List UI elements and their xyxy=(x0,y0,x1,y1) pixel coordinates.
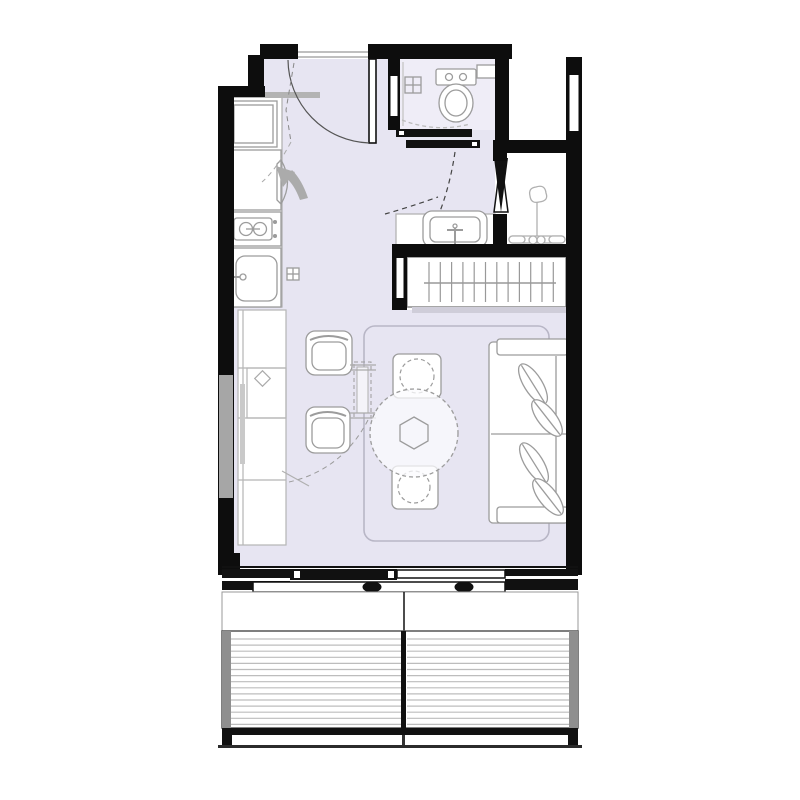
door-panel-right xyxy=(397,570,505,578)
bathroom-east-wall xyxy=(495,59,509,153)
balcony xyxy=(218,592,582,748)
utility-north-wall xyxy=(493,140,578,153)
round-table xyxy=(370,389,458,477)
door-handle-icon xyxy=(363,582,382,593)
headrest-top xyxy=(497,339,568,355)
door-panel-left xyxy=(290,569,397,580)
cabinet xyxy=(229,150,288,210)
cooktop xyxy=(229,212,281,246)
balcony-floor xyxy=(222,592,578,631)
wardrobe-shadow xyxy=(412,307,570,313)
railing xyxy=(222,728,578,735)
bench xyxy=(240,384,245,464)
bifold-door xyxy=(494,158,508,212)
west-window xyxy=(219,375,233,498)
toilet xyxy=(436,69,476,122)
north-wall-left xyxy=(260,44,298,59)
mid-wall xyxy=(392,244,578,257)
stool-top xyxy=(306,331,352,375)
ground-line xyxy=(218,745,582,748)
door-handle-icon xyxy=(455,582,474,593)
bed-sofa xyxy=(489,339,569,523)
west-wall xyxy=(218,86,234,575)
floor-drain-icon xyxy=(287,268,299,280)
balcony-divider xyxy=(401,631,406,728)
balcony-post-right xyxy=(569,631,578,728)
wardrobe xyxy=(407,257,570,313)
door-leaf xyxy=(369,59,376,143)
wall-niche xyxy=(477,65,497,78)
balcony-post-left xyxy=(222,631,231,728)
floor-plan-canvas xyxy=(0,0,800,800)
north-wall-right xyxy=(368,44,512,59)
sliding-glass-doors xyxy=(222,566,578,593)
east-wall xyxy=(566,153,582,575)
vanity xyxy=(396,211,495,247)
floor-plan-drawing xyxy=(0,0,800,800)
fridge xyxy=(229,101,277,147)
stool-bottom xyxy=(306,407,350,453)
